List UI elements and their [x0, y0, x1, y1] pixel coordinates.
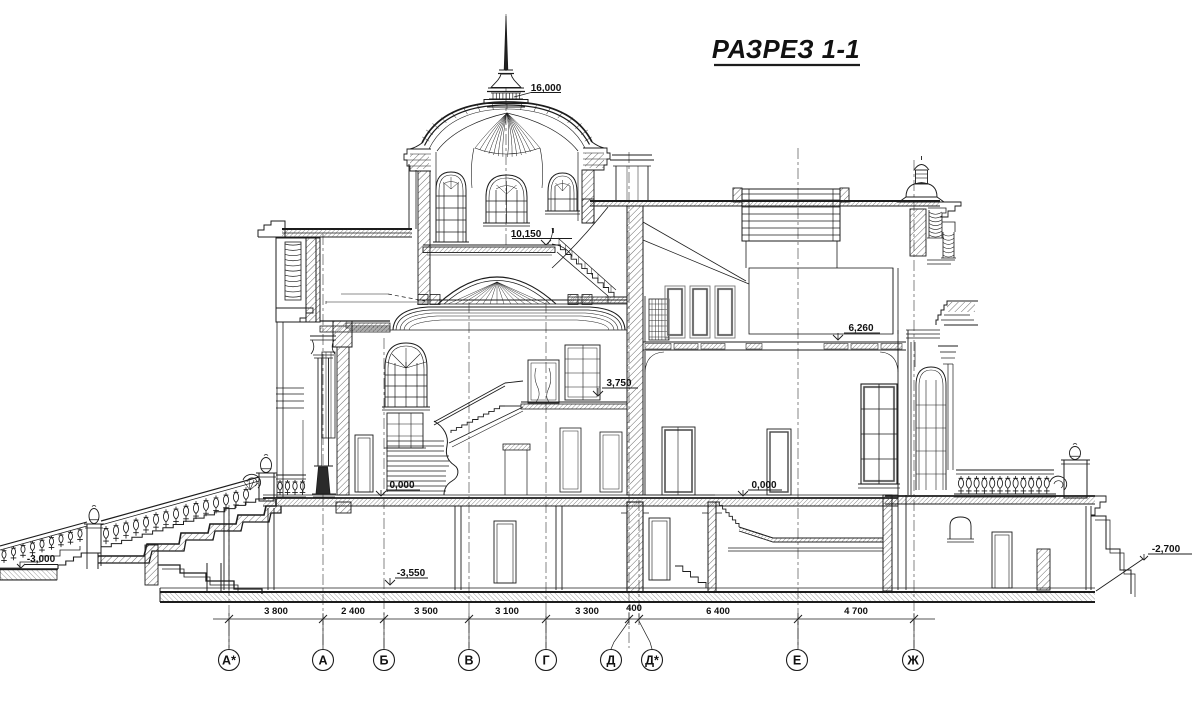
- svg-text:0,000: 0,000: [389, 480, 414, 491]
- svg-text:6 400: 6 400: [706, 606, 730, 617]
- svg-text:А*: А*: [222, 654, 236, 668]
- svg-text:Д: Д: [607, 654, 616, 668]
- svg-text:Г: Г: [542, 654, 549, 668]
- svg-text:В: В: [464, 654, 473, 668]
- svg-text:3 100: 3 100: [495, 606, 519, 617]
- svg-text:3 800: 3 800: [264, 606, 288, 617]
- svg-text:3 300: 3 300: [575, 606, 599, 617]
- svg-text:4 700: 4 700: [844, 606, 868, 617]
- svg-text:Д*: Д*: [645, 654, 659, 668]
- svg-text:Ж: Ж: [906, 654, 919, 668]
- svg-text:А: А: [318, 654, 327, 668]
- svg-text:Б: Б: [380, 654, 389, 668]
- svg-text:3 500: 3 500: [414, 606, 438, 617]
- svg-text:400: 400: [626, 603, 642, 614]
- svg-text:3,750: 3,750: [606, 378, 631, 389]
- svg-text:6,260: 6,260: [848, 323, 873, 334]
- svg-text:РАЗРЕЗ 1-1: РАЗРЕЗ 1-1: [712, 36, 860, 64]
- svg-text:-2,700: -2,700: [1152, 544, 1181, 555]
- svg-text:-3,550: -3,550: [397, 568, 426, 579]
- svg-text:-3,000: -3,000: [27, 554, 56, 565]
- svg-text:Е: Е: [793, 654, 801, 668]
- svg-text:0,000: 0,000: [751, 480, 776, 491]
- svg-text:2 400: 2 400: [341, 606, 365, 617]
